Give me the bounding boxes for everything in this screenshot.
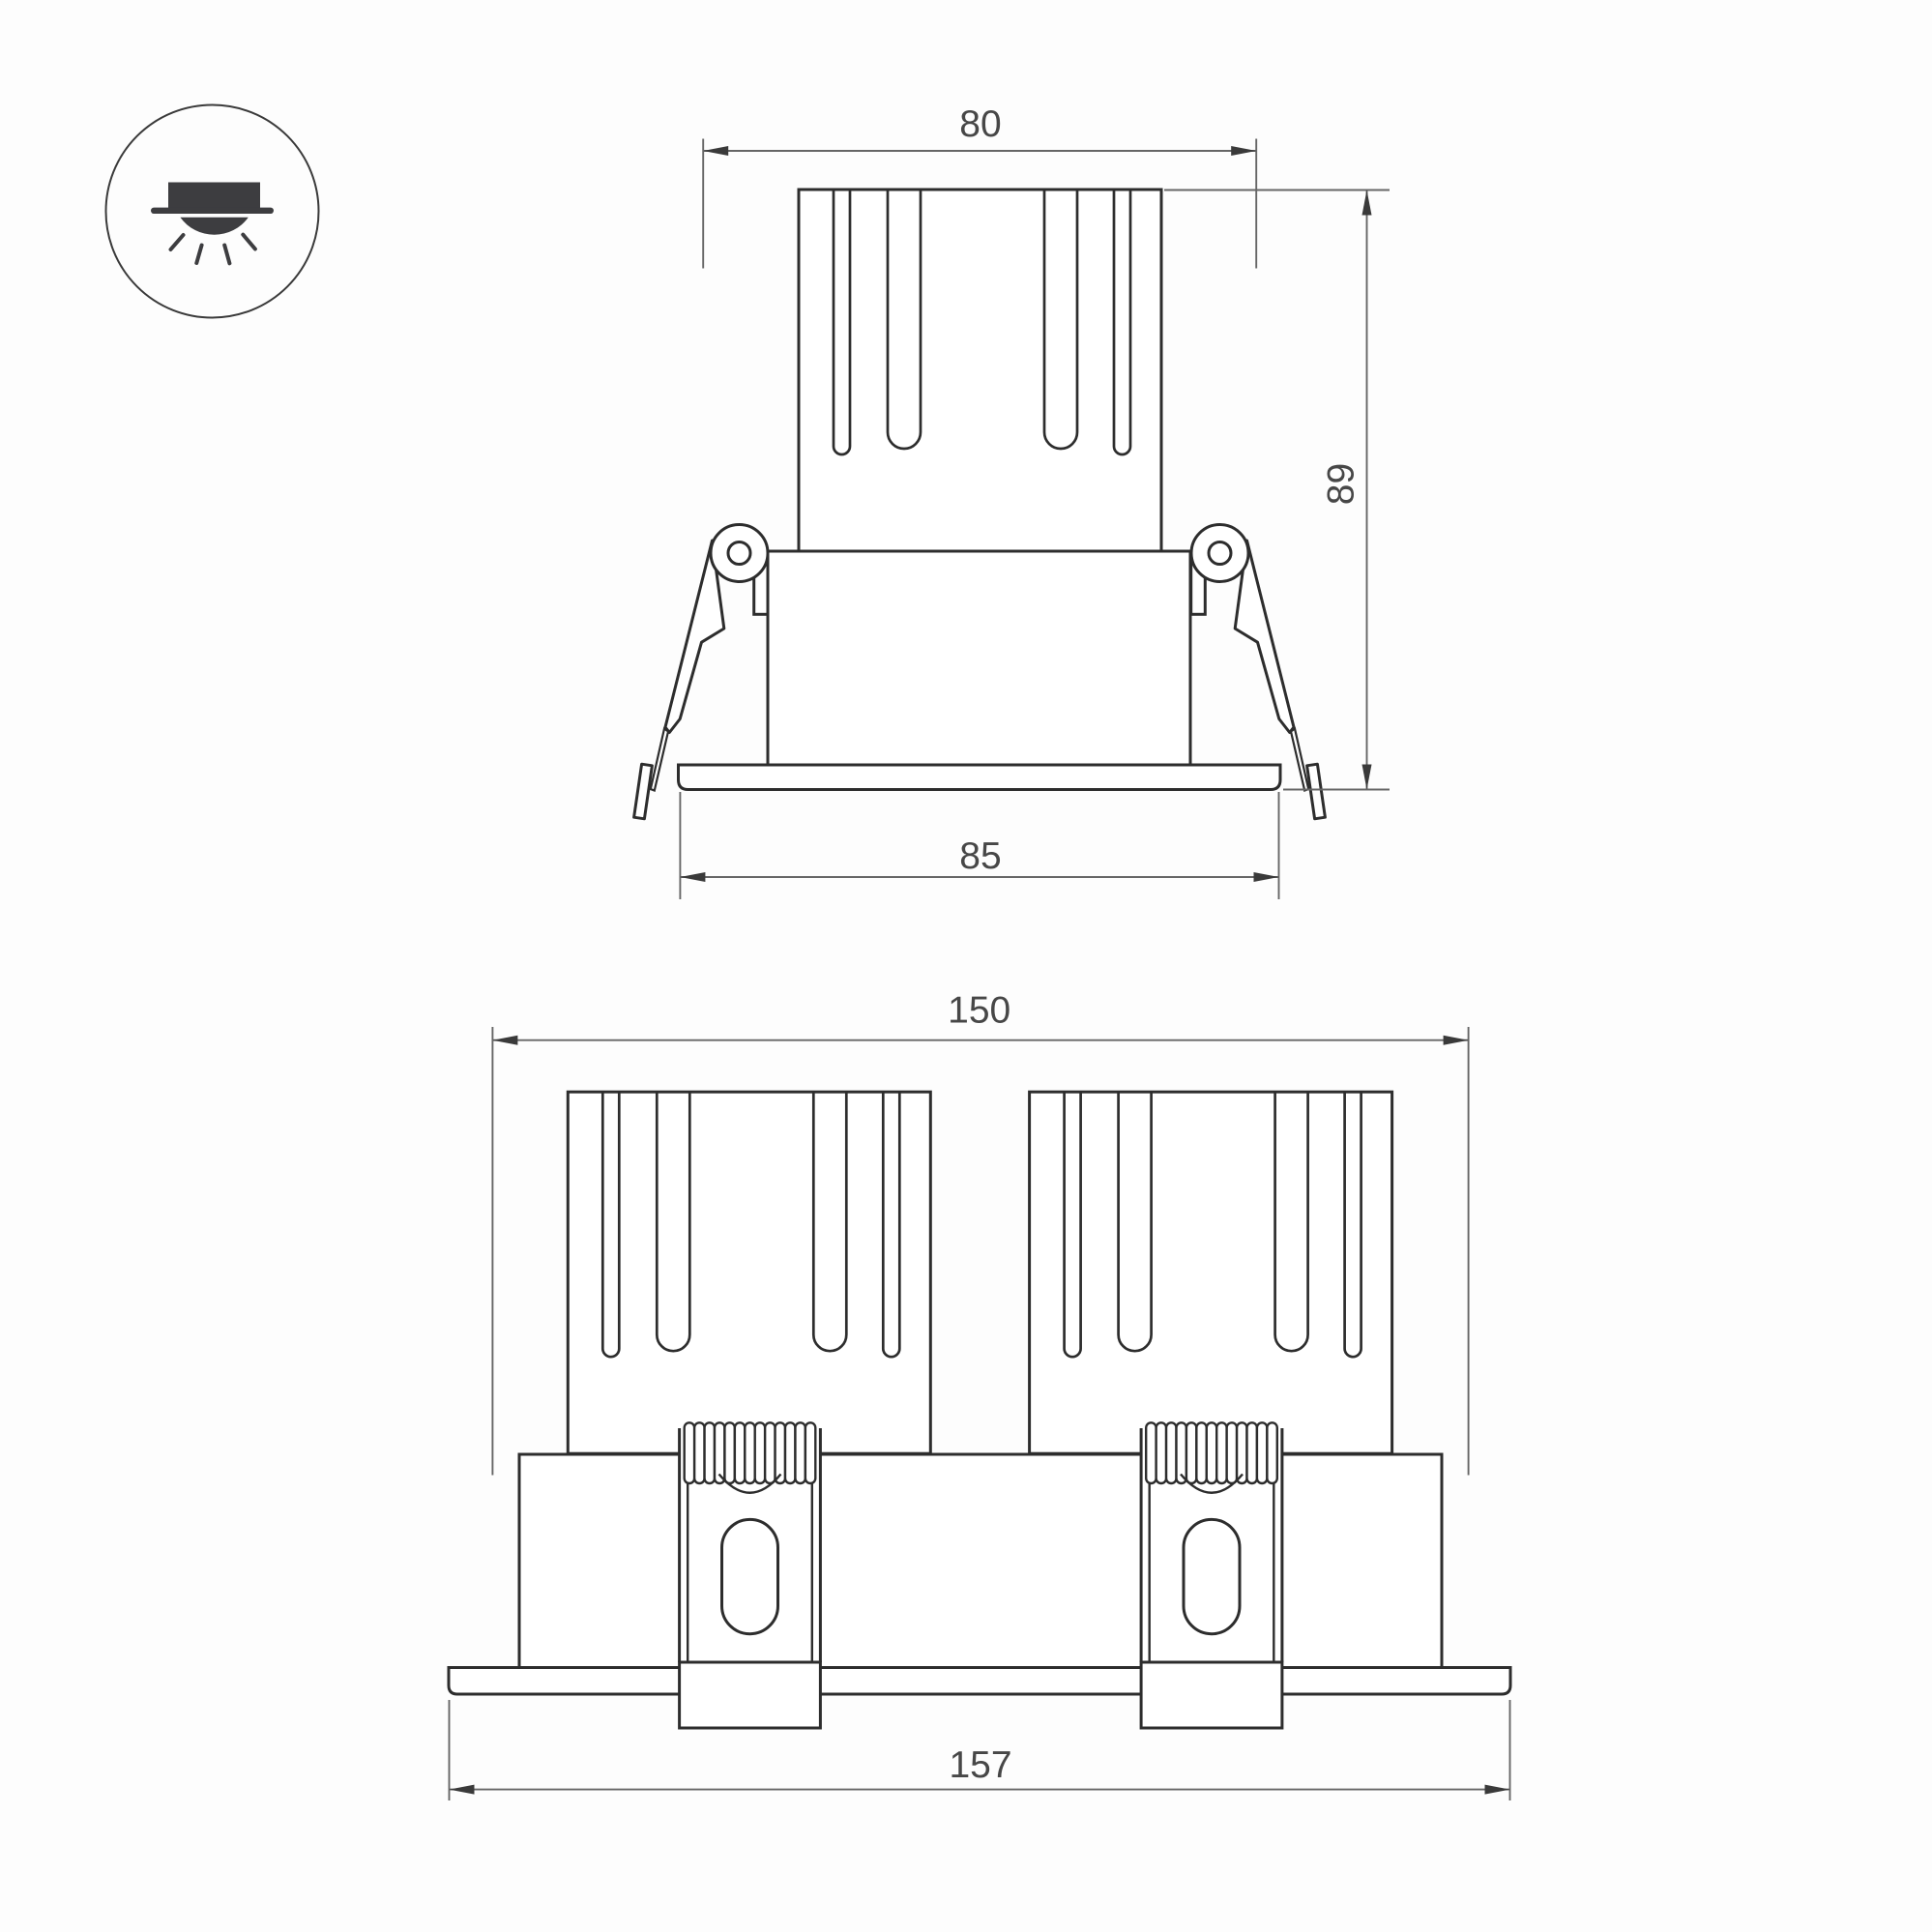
svg-text:157: 157 [949, 1744, 1011, 1786]
svg-text:80: 80 [959, 103, 1001, 145]
svg-text:150: 150 [948, 990, 1010, 1032]
svg-text:89: 89 [1321, 463, 1362, 505]
svg-text:85: 85 [959, 835, 1001, 877]
